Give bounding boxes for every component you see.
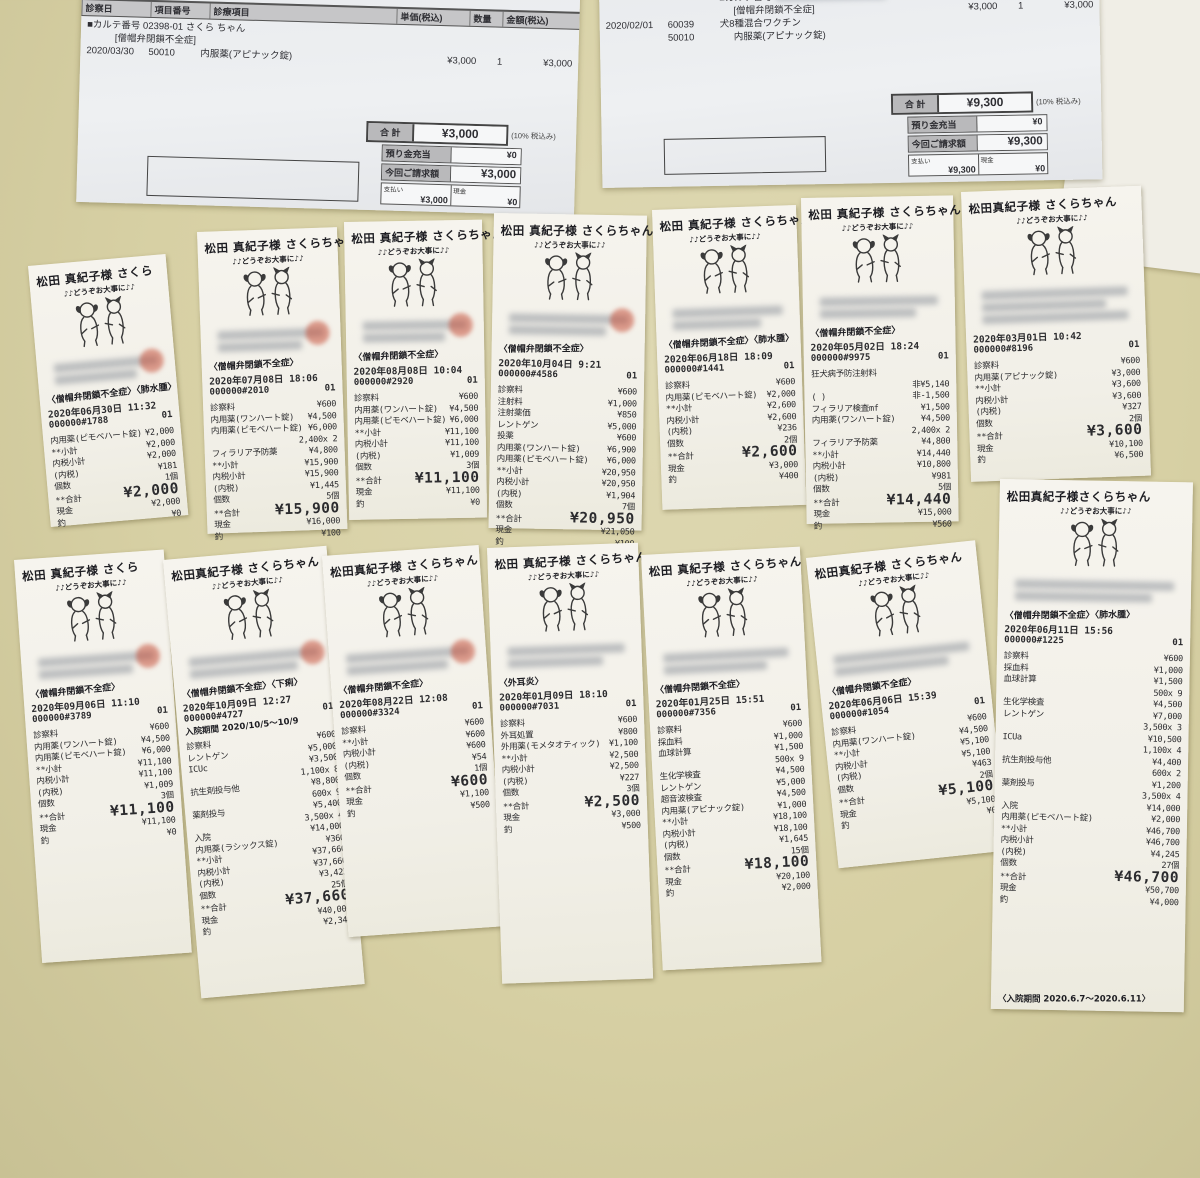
invoice-total-value: ¥9,300 xyxy=(939,93,1031,112)
clinic-name-blur-bar xyxy=(507,643,624,656)
receipt-stamp-area xyxy=(495,581,634,641)
receipt-line-label: 釣 xyxy=(356,499,364,511)
receipt-lines: 内用薬(ピモベハート錠)¥2,000**小計¥2,000内税小計¥2,000(内… xyxy=(50,426,182,530)
receipt-line-value: ¥2,600 xyxy=(693,446,797,461)
receipt-line-value: ¥4,000 xyxy=(1008,895,1179,909)
invoice-header-cell: 金額(税込) xyxy=(502,12,579,29)
receipt-line-label: 個数 xyxy=(976,419,993,431)
clinic-address-blur-bar xyxy=(363,332,445,342)
receipt-line-label: **合計 xyxy=(667,452,693,464)
invoice-payment-row: 支払い¥3,000現金¥0 xyxy=(380,182,521,208)
receipt-stamp-area xyxy=(332,583,478,648)
invoice-subtotal-row: 預り金充当¥0 xyxy=(381,144,521,165)
receipt-stamp-area xyxy=(969,224,1137,285)
dog-cat-stamp-illustration xyxy=(217,588,283,643)
invoice-cash-cell: 現金¥0 xyxy=(451,185,520,207)
receipt-line-label: 釣 xyxy=(814,521,822,533)
receipt-line-label: 診察料 xyxy=(1004,651,1029,663)
clinic-address-blur-bar xyxy=(218,340,302,352)
clinic-phone-blur-bar xyxy=(982,310,1128,324)
receipt-code: 01 xyxy=(1128,340,1139,350)
receipt-line-label: **合計 xyxy=(214,508,240,520)
receipt-code: 01 xyxy=(784,361,795,371)
receipt-code: 01 xyxy=(626,699,637,709)
invoice-tax-note: (10% 税込み) xyxy=(1036,96,1081,108)
invoice-line-unit-price xyxy=(932,26,998,40)
receipt: 松田 真紀子様 さくら♪♪どうぞお大事に♪♪〈僧帽弁閉鎖不全症〉〈肺水腫〉202… xyxy=(28,254,188,527)
clinic-name-blur-bar xyxy=(820,296,938,307)
dog-cat-stamp-illustration xyxy=(691,587,756,640)
receipt-code: 01 xyxy=(161,410,173,421)
invoice-header-cell: 単価(税込) xyxy=(396,9,469,26)
receipt-line-label: 診察料 xyxy=(354,393,379,405)
receipt-code: 01 xyxy=(1172,638,1183,648)
invoice-total-value: ¥3,000 xyxy=(414,124,506,144)
invoice-line-amount: ¥3,000 xyxy=(502,56,572,71)
receipt-number-line: 000000#997501 xyxy=(811,351,949,363)
red-seal-blur xyxy=(139,348,165,374)
receipt-lines: 診察料¥600レントゲン¥5,000ICUc¥3,5001,100x 8抗生剤投… xyxy=(186,730,353,940)
receipt-greeting: ♪♪どうぞお大事に♪♪ xyxy=(1006,506,1185,517)
receipt-line-label: 採血料 xyxy=(1004,663,1029,675)
receipt-line-label: 生化学検査 xyxy=(1003,697,1044,709)
receipt-line-value: ¥6,900 xyxy=(580,444,636,456)
receipt-line-label: ( ) xyxy=(811,393,826,405)
invoice-lines: ■カルテ番号¥6,3001¥6,300[僧帽弁閉鎖不全症]¥3,0001¥3,0… xyxy=(599,0,1100,46)
receipt-lines: 診察料¥600内用薬(ピモベハート錠)¥2,000**小計¥2,600内税小計¥… xyxy=(665,377,799,487)
invoice-line-code: 50010 xyxy=(668,31,720,45)
clinic-name-blur-bar xyxy=(981,286,1127,300)
invoice-total-row: 合 計¥3,000(10% 税込み) xyxy=(366,121,563,147)
receipt-line-label: 現金 xyxy=(503,813,520,825)
clinic-info-blur xyxy=(505,310,632,339)
invoice-header-cell: 診察日 xyxy=(81,0,150,17)
receipt-customer-name: 松田 真紀子様 さくらちゃん xyxy=(501,222,640,238)
red-seal-blur xyxy=(450,639,476,665)
invoice-paid-cell: 支払い¥3,000 xyxy=(381,183,451,205)
invoice-cash-value: ¥0 xyxy=(981,163,1046,174)
receipt-stamp-area xyxy=(352,258,477,315)
receipt-stamp-area xyxy=(1005,517,1185,575)
receipt-line-label: 内税小計 xyxy=(496,477,529,489)
receipt-line-label: 個数 xyxy=(667,439,684,451)
receipt-lines: 診察料¥600内用薬(ワンハート錠)¥4,500内用薬(ピモベハート錠)¥6,0… xyxy=(354,392,480,511)
receipt-lines: 診察料¥600採血料¥1,000血球計算¥1,500500x 9生化学検査¥4,… xyxy=(657,719,811,901)
invoice-line-qty: 1 xyxy=(997,0,1023,13)
receipt-line-label: 診察料 xyxy=(974,361,999,373)
receipt-stamp-area xyxy=(499,251,639,308)
receipt-line-label: 薬剤投与 xyxy=(1002,778,1035,790)
receipt-line-label: 釣 xyxy=(1000,895,1008,907)
receipt-line-value: ¥4,500 xyxy=(438,403,479,415)
invoice-header-cell: 項目番号 xyxy=(150,2,209,19)
receipt-line-label: 個数 xyxy=(1000,858,1017,870)
receipt-code: 01 xyxy=(472,701,484,712)
receipt-line: 釣¥4,000 xyxy=(1000,895,1179,910)
invoice-line-code: 50010 xyxy=(148,46,200,60)
receipt-line-label: **小計 xyxy=(501,753,527,765)
receipt-line-label: **小計 xyxy=(355,428,381,440)
invoice-total-box: 合 計¥3,000 xyxy=(366,121,509,146)
receipt-number: 000000#1225 xyxy=(1004,635,1064,646)
receipt-line-label: レントゲン xyxy=(1003,709,1044,721)
receipt-line-label: 注射薬価 xyxy=(497,408,530,420)
receipt-stamp-area xyxy=(660,243,792,303)
receipt-line-value: ¥6,000 xyxy=(446,415,479,427)
invoice-subtotal-label: 預り金充当 xyxy=(908,116,977,132)
invoice-total-label: 合 計 xyxy=(893,95,939,113)
receipt-lines: 狂犬病予防注射料非¥5,140( )非-1,500フィラリア検査mf¥1,500… xyxy=(811,367,952,532)
dog-cat-stamp-illustration xyxy=(864,584,931,640)
red-seal-blur xyxy=(300,639,326,665)
receipt-line-label: 個数 xyxy=(38,799,55,812)
receipt-line-label: 投薬 xyxy=(497,431,514,443)
invoice-sheet-2: ■カルテ番号¥6,3001¥6,300[僧帽弁閉鎖不全症]¥3,0001¥3,0… xyxy=(598,0,1102,188)
receipt-number: 000000#7031 xyxy=(499,702,559,714)
dog-cat-stamp-illustration xyxy=(1064,518,1127,569)
invoice-line-amount xyxy=(1024,11,1094,25)
receipt-line-label: 現金 xyxy=(813,510,830,522)
invoice-line-qty: 1 xyxy=(476,55,502,69)
receipt: 松田真紀子様 さくらちゃん♪♪どうぞお大事に♪♪2020年03月01日 10:4… xyxy=(961,186,1151,482)
receipt-line-value: ¥20,950 xyxy=(522,512,635,525)
receipt-line-label: 血球計算 xyxy=(1003,674,1036,686)
invoice-body: ■カルテ番号¥6,3001¥6,300[僧帽弁閉鎖不全症]¥3,0001¥3,0… xyxy=(599,0,1100,46)
receipt: 松田 真紀子様 さくら♪♪どうぞお大事に♪♪〈僧帽弁閉鎖不全症〉2020年09月… xyxy=(14,550,192,963)
red-seal-blur xyxy=(610,308,634,332)
receipt-line-label: (内税) xyxy=(502,776,528,788)
hospitalization-period-note: 〈入院期間 2020.6.7～2020.6.11〉 xyxy=(998,993,1177,1005)
receipt-line-label: 現金 xyxy=(495,525,512,537)
receipt-line-label: 注射料 xyxy=(498,397,523,409)
receipt-number: 000000#1441 xyxy=(664,364,724,376)
invoice-line-unit-price xyxy=(932,13,998,27)
receipt-line-label: 診察料 xyxy=(498,385,523,397)
receipt-number: 000000#8196 xyxy=(973,344,1033,356)
receipt-line-label: **合計 xyxy=(976,432,1002,444)
receipt-number: 000000#9975 xyxy=(811,353,871,364)
invoice-subtotal-label: 今回ご請求額 xyxy=(382,164,451,181)
clinic-address-blur-bar xyxy=(1015,591,1152,602)
invoice-line-qty xyxy=(998,13,1024,26)
receipt-line-label: 個数 xyxy=(813,485,830,497)
receipt-line-label: **小計 xyxy=(812,450,838,462)
dog-cat-stamp-illustration xyxy=(372,586,437,640)
invoice-paid-cell: 支払い¥9,300 xyxy=(909,154,979,175)
invoice-subtotal-label: 今回ご請求額 xyxy=(909,135,978,151)
receipt-line-label: **小計 xyxy=(666,404,692,416)
invoice-subtotal-value: ¥0 xyxy=(977,115,1046,131)
receipt-line-label: **合計 xyxy=(813,498,839,510)
dog-cat-stamp-illustration xyxy=(61,591,126,645)
invoice-subtotal-row: 預り金充当¥0 xyxy=(907,114,1047,133)
receipt-line-value: ¥4,500 xyxy=(895,413,950,425)
clinic-info-blur xyxy=(1011,576,1178,606)
receipt-line-value: ¥560 xyxy=(822,519,952,533)
invoice-line-code xyxy=(667,5,719,19)
receipt-line-value: ¥15,900 xyxy=(240,503,340,518)
diagnosis-note: 〈僧帽弁閉鎖不全症〉 xyxy=(499,341,638,355)
dog-cat-stamp-illustration xyxy=(1021,226,1085,278)
receipt-lines: 診察料¥600**小計¥600内税小計¥600(内税)¥54個数1個**合計¥6… xyxy=(341,717,490,821)
invoice-line-qty xyxy=(998,26,1024,39)
receipt-lines: 診察料¥600採血料¥1,000血球計算¥1,500500x 9生化学検査¥4,… xyxy=(1000,651,1183,909)
red-seal-blur xyxy=(449,313,473,337)
receipt-line-label: 個数 xyxy=(54,481,71,494)
receipt: 松田 真紀子様 さくらちゃん♪♪どうぞお大事に♪♪〈僧帽弁閉鎖不全症〉2020年… xyxy=(197,227,347,534)
receipt-line-label: 個数 xyxy=(344,772,361,785)
invoice-sheet-2-content: ■カルテ番号¥6,3001¥6,300[僧帽弁閉鎖不全症]¥3,0001¥3,0… xyxy=(598,0,1102,188)
clinic-name-blur-bar xyxy=(663,647,788,663)
receipt-line-value: ¥0 xyxy=(364,497,480,511)
receipt-line-label: 現金 xyxy=(356,488,373,500)
receipt-line-label: 診察料 xyxy=(665,381,690,393)
receipt-line-label: 個数 xyxy=(502,788,519,800)
receipt-number: 000000#2920 xyxy=(354,377,414,388)
invoice-line-amount xyxy=(1024,24,1094,38)
dog-cat-stamp-illustration xyxy=(533,582,597,634)
invoice-sheet-1: 診察日項目番号診療項目単価(税込)数量金額(税込)■カルテ番号 02398-01… xyxy=(76,0,582,216)
clinic-info-blur xyxy=(668,302,787,333)
clinic-address-blur-bar xyxy=(820,308,916,319)
receipt-line-value: ¥46,700 xyxy=(1026,870,1179,884)
receipt-lines: 診察料¥600内用薬(ワンハート錠)¥4,500内用薬(ピモベハート錠)¥6,0… xyxy=(210,399,341,543)
clinic-address-blur-bar xyxy=(508,656,603,668)
clinic-info-blur xyxy=(213,325,328,356)
dog-cat-stamp-illustration xyxy=(847,234,910,285)
receipt-stamp-area xyxy=(205,265,333,324)
invoice-total-label: 合 計 xyxy=(368,123,414,141)
receipt-line-label: **小計 xyxy=(496,466,522,478)
dog-cat-stamp-illustration xyxy=(383,258,446,309)
receipt: 松田 真紀子様 さくらちゃん♪♪どうぞお大事に♪♪〈僧帽弁閉鎖不全症〉2020年… xyxy=(489,213,647,531)
invoice-tax-note: (10% 税込み) xyxy=(511,130,556,142)
invoice-subtotal-row: 今回ご請求額¥3,000 xyxy=(381,163,521,184)
receipt-code: 01 xyxy=(790,703,801,714)
receipt-customer-name: 松田真紀子様さくらちゃん xyxy=(1007,489,1186,505)
receipt-number-line: 000000#292001 xyxy=(354,376,478,388)
invoice-line-date: 2020/02/01 xyxy=(606,19,668,33)
receipt-line-label: **合計 xyxy=(496,514,522,526)
receipt-line-label: 個数 xyxy=(664,852,681,864)
receipt-line-label: 個数 xyxy=(837,784,855,797)
invoice-line-date xyxy=(605,6,667,20)
receipt-line-label: **合計 xyxy=(355,476,381,488)
receipt-line-label: 診察料 xyxy=(500,719,525,731)
receipt-number: 000000#7356 xyxy=(656,707,716,720)
invoice-total-row: 合 計¥9,300(10% 税込み) xyxy=(891,90,1087,114)
stamp-box xyxy=(664,136,827,175)
receipt: 松田真紀子様 さくらちゃん♪♪どうぞお大事に♪♪〈僧帽弁閉鎖不全症〉2020年0… xyxy=(806,540,1008,868)
receipt-code: 01 xyxy=(974,696,986,707)
receipt-line: 釣¥560 xyxy=(814,519,952,533)
receipt: 松田 真紀子様 さくらちゃん♪♪どうぞお大事に♪♪〈僧帽弁閉鎖不全症〉2020年… xyxy=(344,220,487,520)
receipt: 松田真紀子様 さくらちゃん♪♪どうぞお大事に♪♪〈僧帽弁閉鎖不全症〉2020年0… xyxy=(322,545,505,937)
clinic-address-blur-bar xyxy=(664,661,767,675)
receipt-line-label: (内税) xyxy=(213,483,239,495)
receipt-line-label: **小計 xyxy=(212,460,238,472)
invoice-cash-cell: 現金¥0 xyxy=(978,153,1047,174)
receipt-line-label: 内税小計 xyxy=(1001,835,1034,847)
receipt-line-label: (内税) xyxy=(1000,847,1026,859)
receipt: 松田 真紀子様 さくらちゃん♪♪どうぞお大事に♪♪〈外耳炎〉2020年01月09… xyxy=(487,543,653,984)
clinic-address-blur-bar xyxy=(673,318,761,330)
dog-cat-stamp-illustration xyxy=(69,295,135,350)
receipt-code: 01 xyxy=(938,351,949,361)
invoice-subtotal-value: ¥0 xyxy=(451,147,520,164)
receipt-line-label: (内税) xyxy=(667,427,693,439)
receipt: 松田 真紀子様 さくらちゃん♪♪どうぞお大事に♪♪〈僧帽弁閉鎖不全症〉2020年… xyxy=(801,195,959,524)
receipt: 松田 真紀子様 さくらちゃん♪♪どうぞお大事に♪♪〈僧帽弁閉鎖不全症〉2020年… xyxy=(641,547,822,971)
invoice-total-box: 合 計¥9,300 xyxy=(891,91,1033,114)
receipt-line-label: 個数 xyxy=(213,495,230,507)
receipt-line-label: 個数 xyxy=(355,463,372,475)
receipt-number-line: 000000#122501 xyxy=(1004,635,1183,648)
clinic-info-blur xyxy=(503,640,629,671)
invoice-subtotal-value: ¥3,000 xyxy=(451,166,520,183)
receipt-line-label: (内税) xyxy=(976,407,1002,419)
receipt-line-label: **小計 xyxy=(975,384,1001,396)
receipt-lines: 診察料¥600内用薬(ワンハート錠)¥4,500内用薬(ピモベハート錠)¥6,0… xyxy=(33,722,177,848)
receipt-line: 釣¥0 xyxy=(356,497,480,511)
invoice-sheet-1-content: 診察日項目番号診療項目単価(税込)数量金額(税込)■カルテ番号 02398-01… xyxy=(76,0,582,216)
receipt-line-label: **合計 xyxy=(1000,872,1026,884)
invoice-paid-value: ¥9,300 xyxy=(911,164,976,175)
receipt-line-label: 現金 xyxy=(1000,883,1017,895)
invoice-header-cell: 数量 xyxy=(469,11,502,27)
receipt-line-label: 現金 xyxy=(977,444,994,456)
receipt-lines: 診察料¥600内用薬(ワンハート錠)¥4,500**小計¥5,100内税小計¥5… xyxy=(831,712,997,833)
clinic-info-blur xyxy=(816,293,942,322)
receipt-number: 000000#2010 xyxy=(209,386,269,398)
receipt-line-label: 入院 xyxy=(1001,801,1018,813)
receipt-code: 01 xyxy=(157,706,169,717)
clinic-name-blur-bar xyxy=(1015,579,1174,591)
dog-cat-stamp-illustration xyxy=(694,244,758,296)
dog-cat-stamp-illustration xyxy=(538,252,601,303)
invoice-totals: 合 計¥3,000(10% 税込み)預り金充当¥0今回ご請求額¥3,000支払い… xyxy=(364,121,562,209)
invoice-line-unit-price: ¥3,000 xyxy=(931,0,997,14)
invoice-totals: 合 計¥9,300(10% 税込み)預り金充当¥0今回ご請求額¥9,300支払い… xyxy=(891,90,1088,176)
clinic-address-blur-bar xyxy=(509,325,606,336)
karte-number-blur xyxy=(776,0,886,1)
invoice-line-date xyxy=(606,32,668,46)
invoice-subtotal-label: 預り金充当 xyxy=(382,145,451,162)
diagnosis-note: 〈僧帽弁閉鎖不全症〉〈肺水腫〉 xyxy=(1005,607,1184,622)
invoice-paid-value: ¥3,000 xyxy=(383,193,448,205)
receipt-number: 000000#4586 xyxy=(498,369,558,380)
clinic-info-blur xyxy=(977,283,1132,327)
red-seal-blur xyxy=(135,643,161,669)
receipt-line-label: 内税小計 xyxy=(355,439,388,451)
red-seal-blur xyxy=(305,320,330,345)
invoice-line-code: 60039 xyxy=(668,18,720,32)
receipt-line-label: 個数 xyxy=(496,500,513,512)
invoice-subtotal-value: ¥9,300 xyxy=(978,134,1047,150)
invoice-subtotal-row: 今回ご請求額¥9,300 xyxy=(908,133,1048,152)
invoice-line-date: 2020/03/30 xyxy=(86,44,148,59)
receipt-line-label: 内税小計 xyxy=(813,461,846,473)
receipt-lines: 診察料¥600外耳処置¥800外用薬(モメタオティック)¥1,100**小計¥2… xyxy=(500,715,641,837)
receipt-line-label: 個数 xyxy=(199,890,216,903)
receipt-line-value: ¥14,440 xyxy=(839,494,951,507)
receipt-line-label: 現金 xyxy=(214,520,231,532)
receipt-stamp-area xyxy=(809,233,948,290)
dog-cat-stamp-illustration xyxy=(237,266,301,318)
clinic-name-blur-bar xyxy=(672,306,782,319)
receipt-line-label: **小計 xyxy=(1001,824,1027,836)
invoice-cash-value: ¥0 xyxy=(453,195,518,207)
receipt-lines: 診察料¥600内用薬(アピナック錠)¥3,000**小計¥3,600内税小計¥3… xyxy=(974,356,1144,467)
receipt-line-label: ICUa xyxy=(1002,732,1021,744)
receipt-code: 01 xyxy=(467,376,478,386)
receipt-line-label: **合計 xyxy=(503,801,529,813)
invoice-line-unit-price: ¥3,000 xyxy=(410,53,476,68)
receipt-line-label: 抗生剤投与他 xyxy=(1002,755,1051,767)
receipt-stamp-area xyxy=(24,588,164,652)
receipt-stamp-area xyxy=(650,585,798,648)
receipt-line-label: 診察料 xyxy=(210,403,235,415)
receipt-line-label: (内税) xyxy=(355,451,381,463)
receipt-line-value: ¥11,100 xyxy=(381,472,479,485)
receipt-line-value: ¥6,000 xyxy=(588,456,636,468)
diagnosis-note: 〈僧帽弁閉鎖不全症〉 xyxy=(353,345,477,363)
invoice-body: 診察日項目番号診療項目単価(税込)数量金額(税込)■カルテ番号 02398-01… xyxy=(80,0,579,71)
receipt-number-line: 000000#458601 xyxy=(498,369,637,381)
receipt-line-label: レントゲン xyxy=(497,420,538,432)
clinic-address-blur-bar xyxy=(982,299,1106,312)
desk-photo: { "invoices": [ { "header_cells": ["診察日"… xyxy=(0,0,1200,1178)
receipt-code: 01 xyxy=(626,371,637,381)
receipt: 松田真紀子様さくらちゃん♪♪どうぞお大事に♪♪〈僧帽弁閉鎖不全症〉〈肺水腫〉20… xyxy=(991,479,1193,1012)
stamp-box xyxy=(146,156,359,202)
invoice-line-name: 内服薬(アピナック錠) xyxy=(720,27,932,44)
receipt-greeting: ♪♪どうぞお大事に♪♪ xyxy=(500,239,639,250)
receipt-line-label: (内税) xyxy=(496,489,522,501)
receipt: 松田 真紀子様 さくらちゃん♪♪どうぞお大事に♪♪〈僧帽弁閉鎖不全症〉〈肺水腫〉… xyxy=(652,205,806,510)
receipt-line-label: 現金 xyxy=(665,877,682,889)
receipt-lines: 診察料¥600注射料¥1,000注射薬価¥850レントゲン¥5,000投薬¥60… xyxy=(495,385,637,550)
invoice-payment-row: 支払い¥9,300現金¥0 xyxy=(908,152,1048,176)
clinic-info-blur xyxy=(359,317,471,346)
receipt-line-label: 現金 xyxy=(668,464,685,476)
receipt-code: 01 xyxy=(325,383,336,393)
receipt-line-label: (内税) xyxy=(813,473,839,485)
